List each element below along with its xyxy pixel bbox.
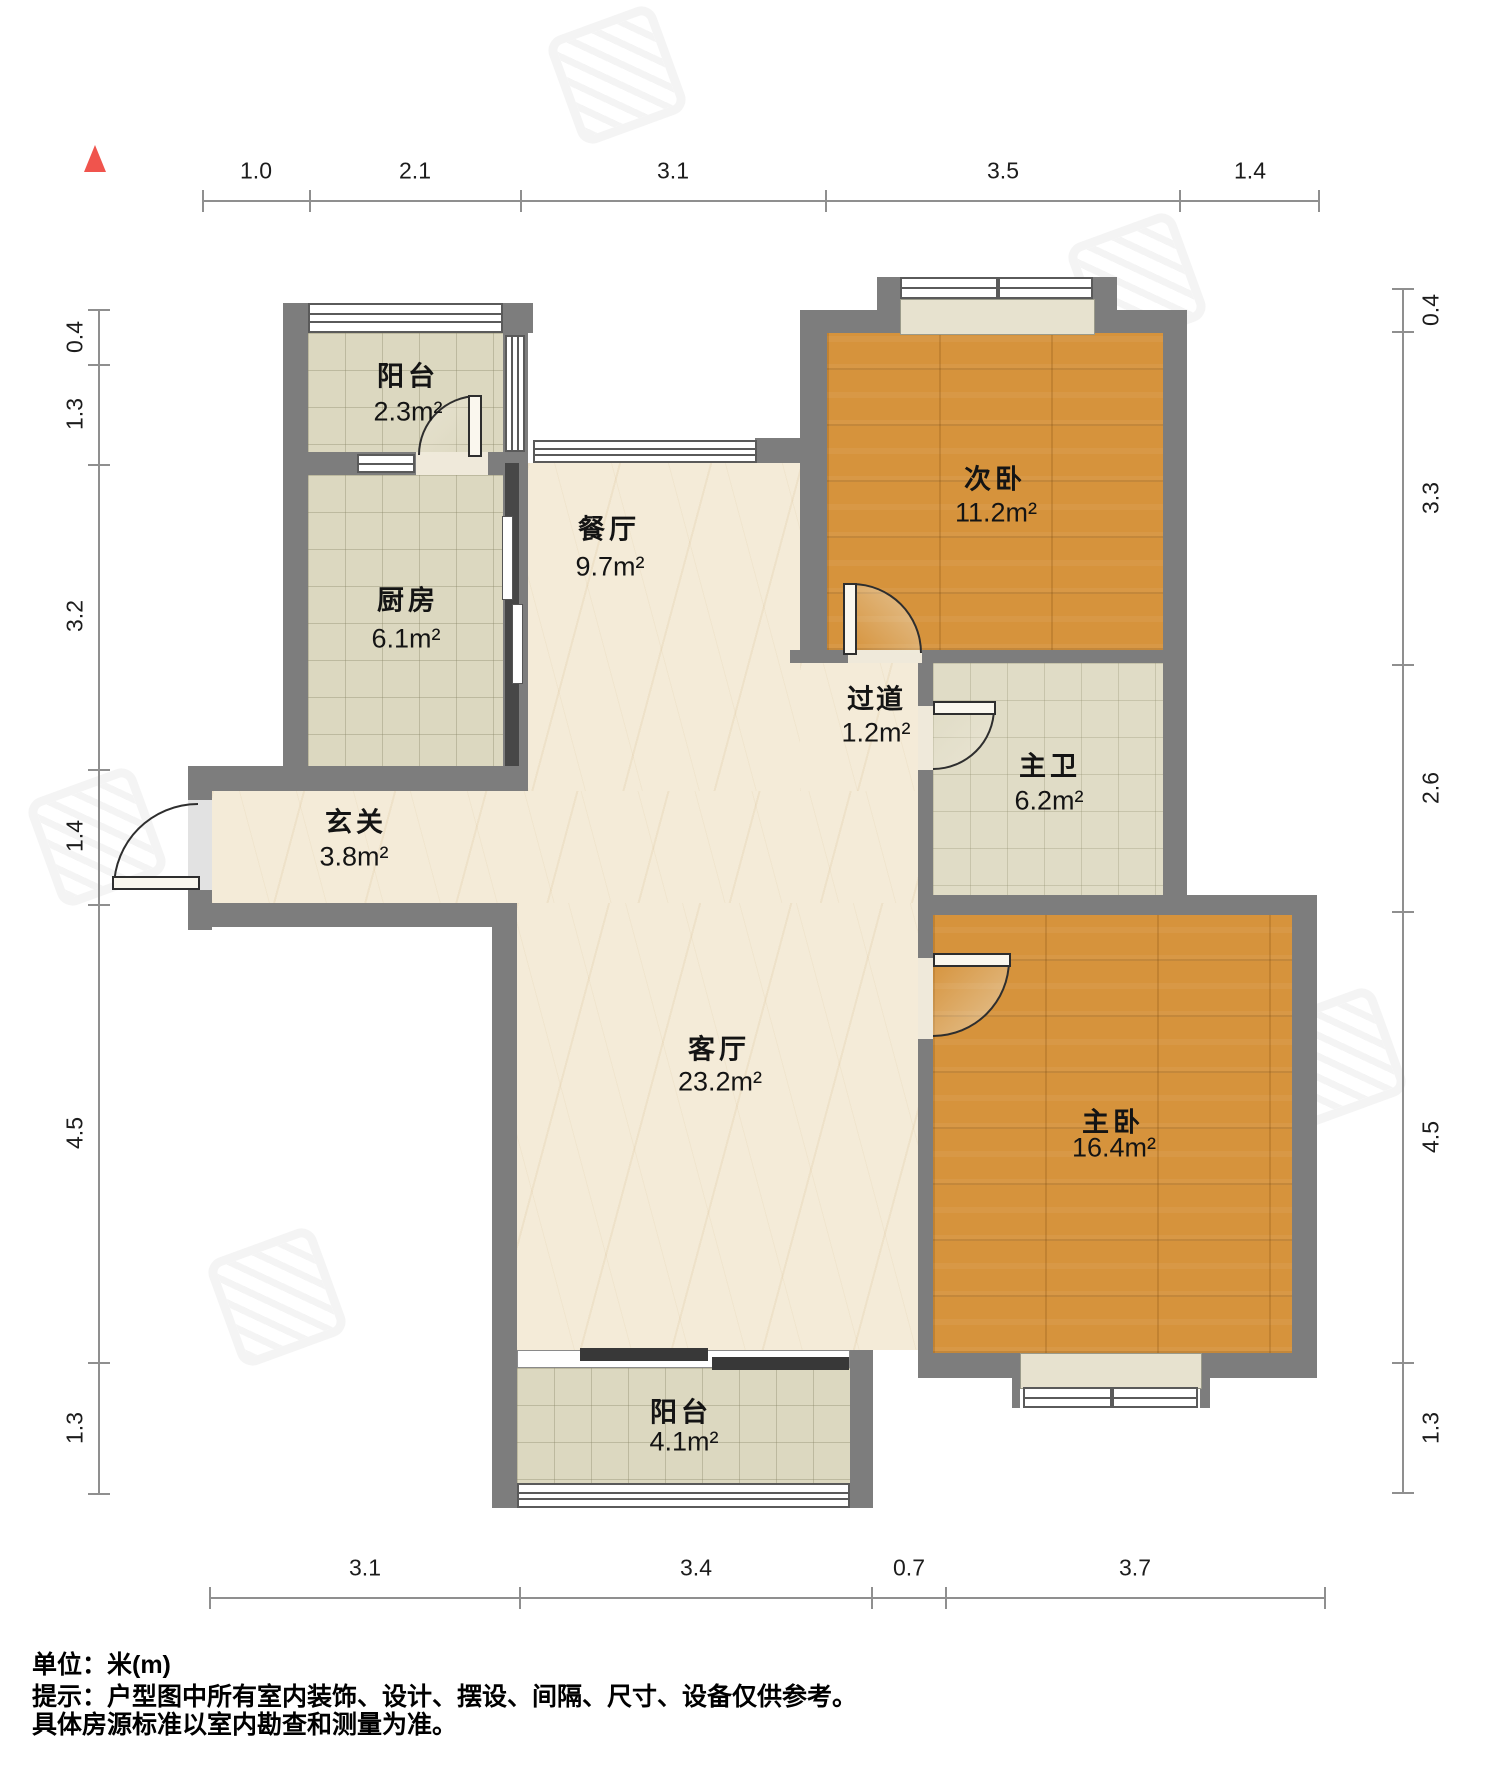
wall [1200, 1353, 1317, 1378]
sliding-door-panel [712, 1357, 849, 1370]
dimension-tick [88, 309, 110, 311]
dimension-tick [1392, 288, 1414, 290]
sliding-door-panel [502, 516, 513, 600]
dimension-tick [88, 464, 110, 466]
dimension-label: 0.7 [893, 1555, 925, 1582]
dimension-tick [1392, 1362, 1414, 1364]
wall [918, 1353, 1020, 1378]
dimension-label: 4.5 [1418, 1121, 1445, 1153]
wall [188, 903, 517, 927]
dimension-label: 3.4 [680, 1555, 712, 1582]
watermark [544, 2, 690, 148]
dimension-tick [1392, 664, 1414, 666]
dimension-tick [519, 1587, 521, 1609]
room-area-dining: 9.7m² [575, 552, 644, 583]
dimension-line-left [98, 310, 100, 1495]
dimension-tick [1324, 1587, 1326, 1609]
room-area-kitchen: 6.1m² [371, 624, 440, 655]
door-leaf [933, 701, 996, 715]
dimension-label: 0.4 [1418, 294, 1445, 326]
room-label-hallway: 过道 [847, 678, 905, 717]
wall [492, 903, 517, 1508]
door-leaf [933, 953, 1011, 967]
room-label-dining: 餐厅 [578, 508, 640, 547]
room-label-kitchen: 厨房 [377, 579, 439, 618]
dining-room-floor [528, 463, 800, 791]
dimension-label: 1.4 [62, 820, 89, 852]
dimension-tick [520, 190, 522, 212]
room-label-entrance: 玄关 [325, 801, 387, 840]
door-leaf [468, 395, 482, 457]
door-opening [918, 706, 933, 770]
room-label-balcony-bottom: 阳台 [650, 1391, 712, 1430]
dimension-label: 3.5 [987, 158, 1019, 185]
dimension-label: 1.3 [62, 398, 89, 430]
dimension-line-bottom [210, 1597, 1325, 1599]
bay-window-sill [900, 299, 1095, 335]
dimension-label: 2.6 [1418, 772, 1445, 804]
wall [800, 310, 900, 333]
dimension-label: 3.2 [62, 600, 89, 632]
door-leaf [843, 583, 857, 655]
dimension-label: 1.4 [1234, 158, 1266, 185]
window [308, 303, 503, 333]
dimension-line-right [1402, 289, 1404, 1493]
window [357, 454, 415, 473]
room-label-balcony-top: 阳台 [377, 355, 439, 394]
dimension-label: 4.5 [62, 1117, 89, 1149]
wall [755, 438, 803, 463]
room-area-second-bedroom: 11.2m² [955, 498, 1037, 529]
kitchen-floor [308, 475, 503, 766]
bay-window [900, 277, 1093, 299]
sliding-door-panel [512, 604, 523, 684]
dimension-label: 3.3 [1418, 482, 1445, 514]
entry-door-leaf [112, 876, 200, 890]
wall [850, 1350, 873, 1508]
wall [800, 310, 827, 663]
north-arrow-icon [84, 145, 106, 172]
dimension-tick [202, 190, 204, 212]
dimension-tick [88, 1362, 110, 1364]
window [533, 440, 757, 463]
entrance-floor [212, 791, 918, 903]
sliding-door-panel [580, 1348, 708, 1361]
dimension-tick [88, 769, 110, 771]
dimension-tick [1392, 331, 1414, 333]
footer-unit-text: 单位：米(m) [32, 1645, 171, 1681]
bay-window-side [1012, 1353, 1020, 1408]
dimension-tick [1392, 1492, 1414, 1494]
dimension-label: 1.3 [62, 1412, 89, 1444]
bay-window-side [877, 277, 900, 310]
dimension-tick [1318, 190, 1320, 212]
dimension-tick [88, 1493, 110, 1495]
room-area-entrance: 3.8m² [319, 842, 388, 873]
floor-plan: 阳台 2.3m² 厨房 6.1m² 餐厅 9.7m² 次卧 11.2m² 过道 … [0, 0, 1504, 1787]
dimension-tick [209, 1587, 211, 1609]
wall [1292, 895, 1317, 1378]
footer-note-text: 具体房源标准以室内勘查和测量为准。 [32, 1705, 457, 1741]
dimension-tick [871, 1587, 873, 1609]
window-mullion [1110, 1389, 1114, 1406]
door-opening [918, 958, 933, 1039]
wall [1163, 310, 1187, 915]
wall [503, 303, 533, 333]
dimension-tick [88, 904, 110, 906]
dimension-tick [1179, 190, 1181, 212]
room-area-master-bathroom: 6.2m² [1014, 786, 1083, 817]
room-label-second-bedroom: 次卧 [964, 458, 1026, 497]
room-label-master-bathroom: 主卫 [1019, 745, 1081, 784]
wall [918, 895, 1317, 915]
room-area-hallway: 1.2m² [841, 718, 910, 749]
dimension-label: 0.4 [62, 321, 89, 353]
room-area-balcony-bottom: 4.1m² [649, 1427, 718, 1458]
wall [1093, 310, 1163, 333]
window-mullion [996, 279, 1000, 297]
dimension-label: 3.7 [1119, 1555, 1151, 1582]
dimension-tick [945, 1587, 947, 1609]
watermark [204, 1224, 350, 1370]
dimension-label: 1.0 [240, 158, 272, 185]
room-label-living-room: 客厅 [688, 1028, 750, 1067]
dimension-tick [825, 190, 827, 212]
bay-window-side [1093, 277, 1117, 310]
dimension-tick [1392, 911, 1414, 913]
wall [188, 766, 528, 791]
room-area-master-bedroom: 16.4m² [1072, 1133, 1156, 1164]
dimension-label: 3.1 [349, 1555, 381, 1582]
dimension-tick [88, 364, 110, 366]
bay-window-sill [1020, 1353, 1202, 1389]
dimension-label: 3.1 [657, 158, 689, 185]
bay-window [1023, 1387, 1198, 1408]
room-area-living-room: 23.2m² [678, 1067, 762, 1098]
dimension-line-top [203, 200, 1320, 202]
dimension-label: 1.3 [1418, 1412, 1445, 1444]
room-area-balcony-top: 2.3m² [373, 397, 442, 428]
living-room-floor [517, 903, 918, 1350]
dimension-tick [309, 190, 311, 212]
dimension-label: 2.1 [399, 158, 431, 185]
window [505, 335, 525, 452]
wall [283, 303, 308, 766]
window [517, 1483, 850, 1508]
